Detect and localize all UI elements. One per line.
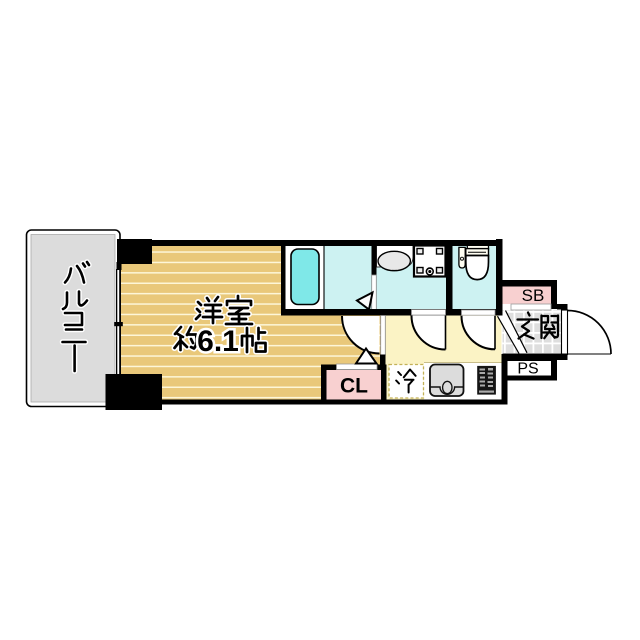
svg-text:SB: SB [522,286,545,305]
svg-text:6.1: 6.1 [197,325,239,358]
svg-text:CL: CL [340,375,368,398]
svg-text:PS: PS [517,361,538,378]
